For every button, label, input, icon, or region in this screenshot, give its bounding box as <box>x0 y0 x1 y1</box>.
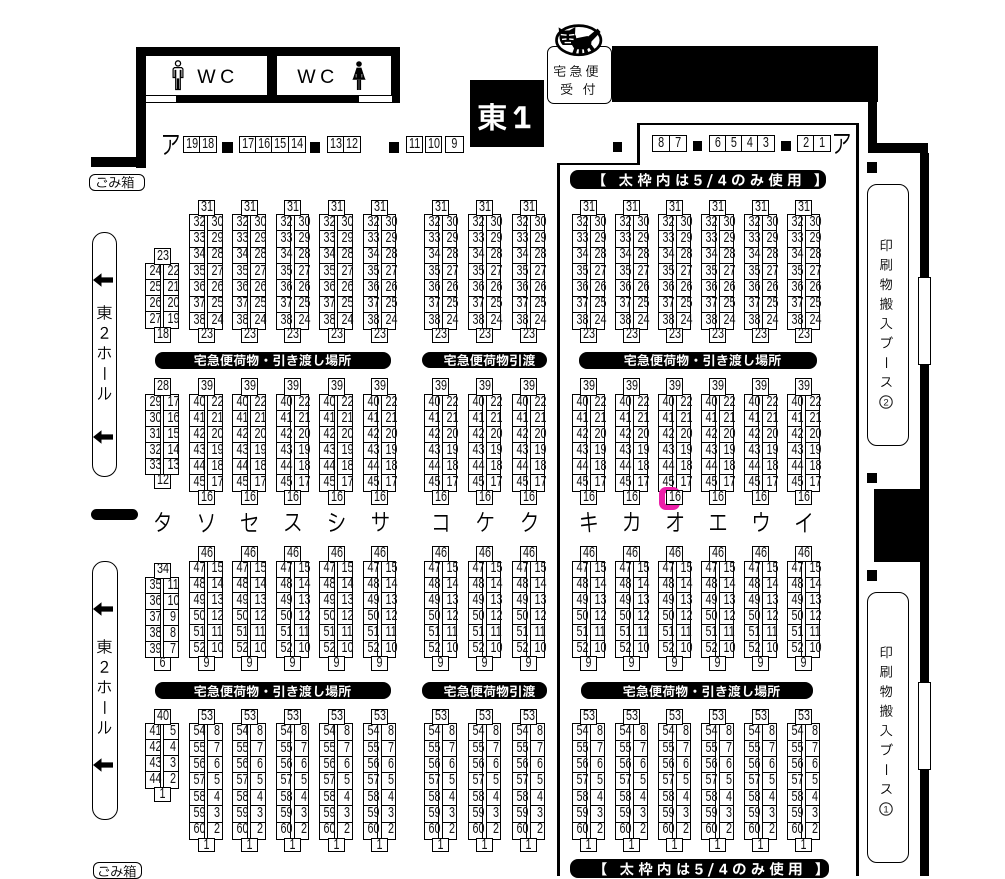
svg-text:1: 1 <box>884 804 889 815</box>
svg-text:2: 2 <box>884 397 889 408</box>
